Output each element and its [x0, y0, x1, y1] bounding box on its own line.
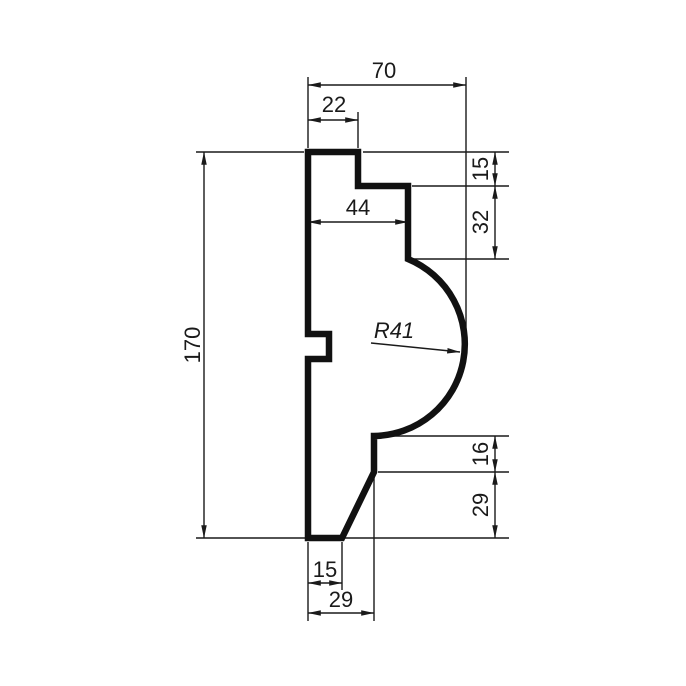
dim-label-bottom-flat-width: 15	[313, 557, 337, 582]
dim-label-bottom-overall-width: 29	[329, 587, 353, 612]
dim-label-mid-face-width: 44	[346, 195, 370, 220]
dim-label-overall-width: 70	[372, 58, 396, 83]
dim-label-lower-right-height: 29	[468, 493, 493, 517]
dim-label-lower-right-face: 16	[468, 442, 493, 466]
radius-leader-line	[371, 343, 460, 352]
dimension-labels: 70 22 44 170 15 32 R41 16 29 15 29	[180, 58, 493, 612]
dim-label-upper-right-face: 32	[468, 210, 493, 234]
dim-label-overall-height: 170	[180, 327, 205, 364]
dim-label-cove-radius: R41	[374, 318, 414, 343]
dimension-lines	[204, 85, 495, 613]
dim-label-top-step-width: 22	[322, 92, 346, 117]
dim-label-top-right-step: 15	[468, 157, 493, 181]
technical-drawing-canvas: 70 22 44 170 15 32 R41 16 29 15 29	[0, 0, 686, 686]
profile-drawing-svg: 70 22 44 170 15 32 R41 16 29 15 29	[0, 0, 686, 686]
